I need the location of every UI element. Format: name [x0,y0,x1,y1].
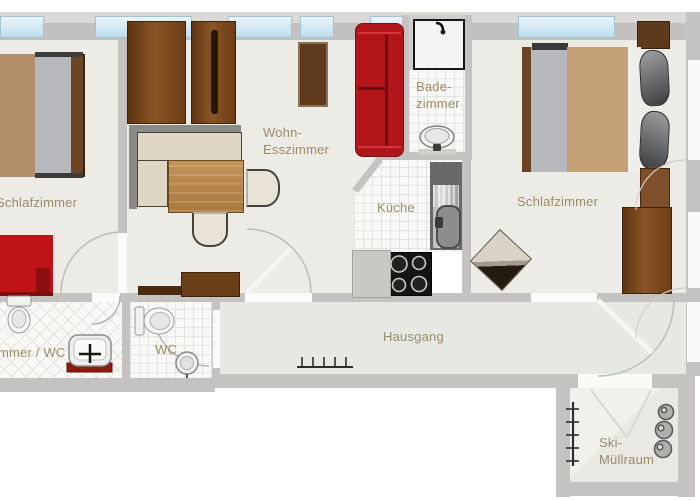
bed-edge [35,173,83,178]
room-label-living-line2: Esszimmer [263,141,329,158]
window [228,16,292,38]
floor-plan: Schlafzimmer Wohn- Esszimmer Bade- zimme… [0,0,700,500]
room-label-bedroom-left: Schlafzimmer [0,194,77,211]
drainboard [433,185,459,207]
double-bed [522,47,668,172]
room-label-bath: Bade- zimmer [416,78,460,112]
ski-wall-bottom [556,482,695,496]
room-label-living: Wohn- Esszimmer [263,124,329,158]
window [300,16,334,38]
stove [388,252,432,296]
bed-edge [35,52,83,57]
dining-chair [192,212,228,247]
entry-door-opening [687,302,700,362]
red-cabinet-detail [36,268,50,292]
door-opening-living [245,293,312,302]
kitchen-counter [430,162,462,250]
room-label-bath-line2: zimmer [416,95,460,112]
wardrobe-mirror [191,21,236,124]
room-label-ski: Ski- Müllraum [599,434,654,468]
sofa-seat-top [137,132,242,162]
bed-blanket [531,47,568,172]
single-bed [0,54,83,177]
shower [413,19,465,70]
hall-floor [220,300,686,376]
door-leaf-bedroom-left [118,233,127,293]
outer-wall-bottom-left [0,378,215,392]
bed-mattress [0,54,36,177]
pillow [639,49,671,106]
room-wc-floor [0,300,122,380]
room-label-ski-line1: Ski- [599,434,654,451]
ski-wall-right [678,376,695,497]
door-opening-room-wc [92,293,120,302]
sofa-seam-horizontal [358,87,386,90]
rug [298,42,328,107]
wardrobe-right-upper [640,168,670,209]
faucet-icon [435,217,443,228]
room-label-room-wc: mmer / WC [0,344,66,361]
wall-bath-right [465,15,472,152]
door-opening-bedroom-right [531,293,597,302]
sofa-seam-vertical [385,32,388,148]
red-sofa [355,23,404,157]
window [518,16,615,38]
wall-kitchen-bedroom [462,160,471,295]
sofa-armrest [358,146,401,148]
room-label-ski-line2: Müllraum [599,451,654,468]
wardrobe [127,21,186,124]
dining-chair [246,169,280,207]
bed-blanket [35,54,72,177]
window-right-2 [688,212,700,288]
sofa-armrest [358,32,401,34]
sofa-seat-left [137,160,168,207]
wall-wc-divider [122,300,130,380]
wall-bedroom-living [118,40,127,235]
room-label-bedroom-right: Schlafzimmer [517,193,598,210]
bed-frame-rail [71,54,85,177]
dining-table [168,160,244,213]
room-label-hall: Hausgang [383,328,444,345]
sideboard [181,272,240,297]
ski-wall-left [556,376,570,497]
window [0,16,44,38]
room-label-kitchen: Küche [377,199,415,216]
room-label-wc: WC [155,341,177,358]
sideboard [138,286,181,295]
sofa-back-left [129,125,137,209]
pillow [639,110,671,169]
window-right-1 [688,60,700,160]
wardrobe-mirror-stripe [211,30,218,114]
bed-edge [532,43,568,50]
wardrobe-right [622,207,672,294]
base-cabinet [352,250,391,298]
room-label-living-line1: Wohn- [263,124,329,141]
nightstand [637,21,670,49]
door-opening-ski [578,374,652,388]
wc-floor [130,300,212,380]
bed-mattress [567,47,629,172]
room-label-bath-line1: Bade- [416,78,460,95]
door-opening-wc [213,310,220,368]
red-cabinet [0,235,53,296]
